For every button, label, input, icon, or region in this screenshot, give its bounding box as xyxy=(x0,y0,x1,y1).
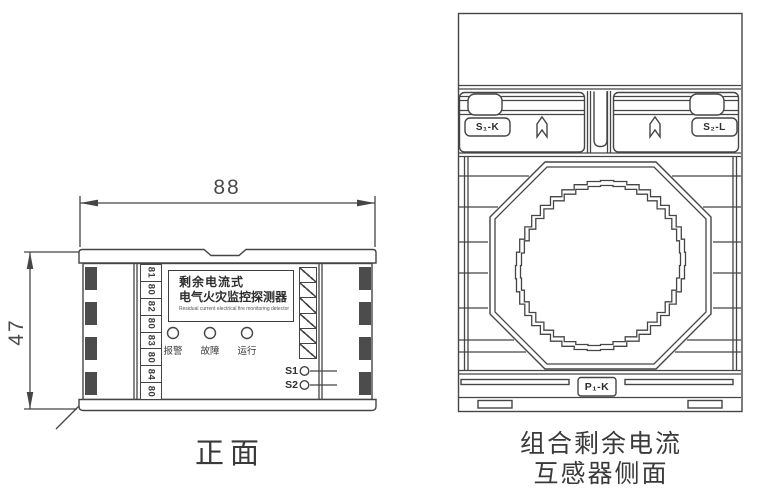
height-dimension-value: 47 xyxy=(5,310,29,354)
dim-arrow-up-icon xyxy=(27,252,34,269)
right-clip-slider xyxy=(690,94,724,115)
s2-terminal-icon xyxy=(300,381,309,390)
wiring-cell xyxy=(300,329,316,344)
foot-right xyxy=(688,401,722,409)
name-plate-line1: 剩余电流式 xyxy=(179,275,293,290)
side-view-caption-line1: 组合剩余电流 xyxy=(460,429,742,459)
left-clip-terminal-label: S₁-K xyxy=(465,122,510,133)
front-right-contact-strip xyxy=(359,267,371,395)
foot-left xyxy=(478,401,512,409)
dim-arrow-down-icon xyxy=(27,392,34,409)
fault-led-icon xyxy=(205,328,216,339)
bottom-slot-left xyxy=(461,380,569,385)
front-terminal-strip: 81 80 82 80 83 80 84 80 xyxy=(140,264,162,400)
alarm-led-label: 报警 xyxy=(153,343,193,357)
left-clip-slider xyxy=(468,94,502,115)
dim-arrow-right-icon xyxy=(357,200,375,207)
terminal-cell: 84 xyxy=(141,366,161,383)
right-clip-terminal-label: S₂-L xyxy=(692,122,737,133)
terminal-number: 84 xyxy=(145,368,156,380)
fault-led-label: 故障 xyxy=(190,343,230,357)
s2-terminal-label: S2 xyxy=(276,379,298,391)
technical-drawing-page: 88 47 81 80 82 80 83 80 84 80 剩余电流式 电气火灾… xyxy=(0,0,761,497)
wiring-cell xyxy=(300,283,316,298)
s1-terminal-label: S1 xyxy=(276,365,298,377)
terminal-cell: 80 xyxy=(141,316,161,333)
front-left-contact-strip xyxy=(85,267,97,395)
terminal-number: 82 xyxy=(145,301,156,313)
front-view-caption: 正面 xyxy=(130,430,330,472)
name-plate-line2: 电气火灾监控探测器 xyxy=(179,290,293,305)
side-view-caption: 组合剩余电流 互感器侧面 xyxy=(460,429,742,489)
terminal-cell: 80 xyxy=(141,282,161,299)
run-led-label: 运行 xyxy=(227,343,267,357)
side-view-caption-line2: 互感器侧面 xyxy=(460,459,742,489)
front-bottom-lid xyxy=(79,400,376,411)
dim-arrow-left-icon xyxy=(80,200,98,207)
wiring-cell xyxy=(300,268,316,283)
front-top-lid xyxy=(79,250,376,264)
terminal-number: 80 xyxy=(145,385,156,397)
wiring-cell xyxy=(300,314,316,329)
wiring-cell xyxy=(300,298,316,313)
front-wiring-strip xyxy=(299,267,317,359)
terminal-number: 80 xyxy=(145,284,156,296)
run-led-icon xyxy=(242,328,253,339)
terminal-number: 80 xyxy=(145,318,156,330)
bottom-terminal-label: P₁-K xyxy=(578,381,616,393)
drawing-svg xyxy=(0,0,761,497)
wiring-cell xyxy=(300,344,316,358)
s1-terminal-icon xyxy=(300,367,309,376)
terminal-cell: 82 xyxy=(141,299,161,316)
terminal-cell: 81 xyxy=(141,265,161,282)
center-latch-tab xyxy=(594,92,607,147)
octagon-outer xyxy=(490,162,711,369)
name-plate: 剩余电流式 电气火灾监控探测器 Residual current electri… xyxy=(168,270,294,322)
name-plate-subtitle: Residual current electrical fire monitor… xyxy=(179,306,293,312)
alarm-led-icon xyxy=(168,328,179,339)
width-dimension-value: 88 xyxy=(182,176,272,200)
terminal-number: 81 xyxy=(145,267,156,279)
front-height-dimension xyxy=(24,252,79,429)
bottom-slot-right xyxy=(625,380,733,385)
front-width-dimension xyxy=(80,196,375,247)
terminal-cell: 80 xyxy=(141,383,161,399)
